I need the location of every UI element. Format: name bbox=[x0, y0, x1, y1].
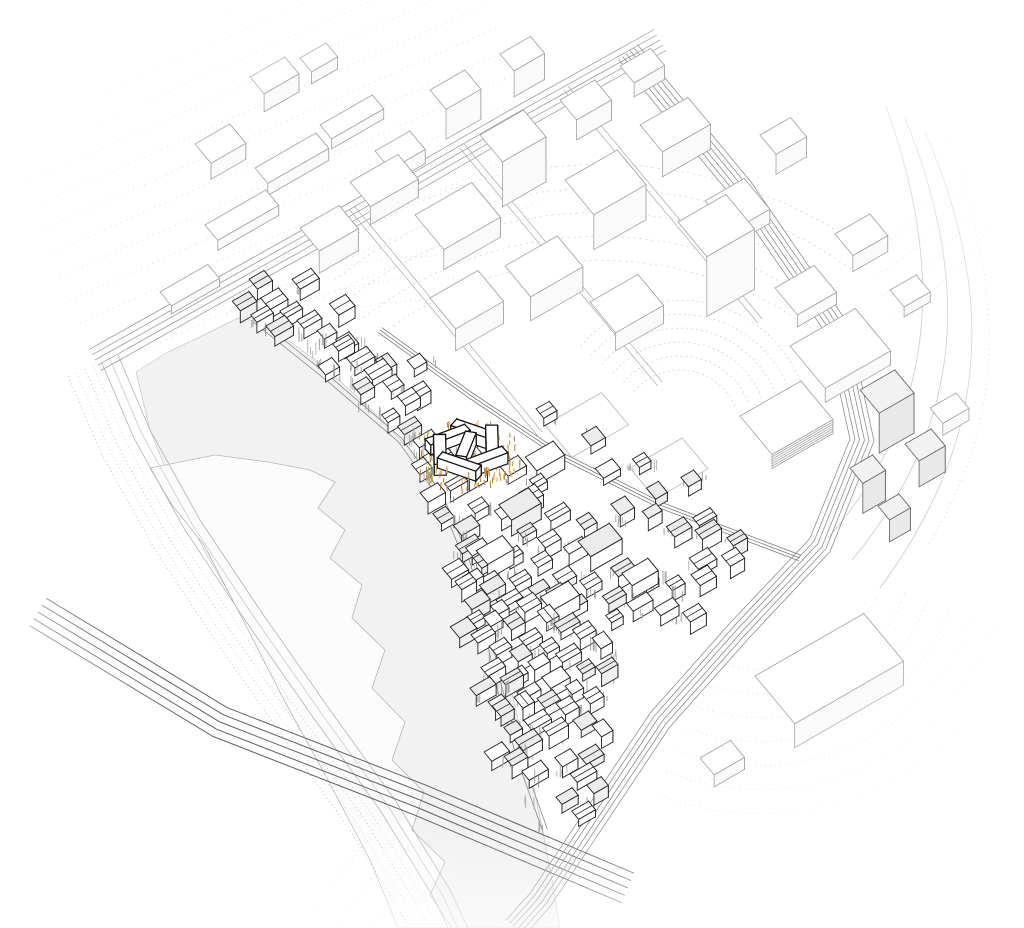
vignette-overlay bbox=[0, 0, 1024, 928]
drawing-canvas bbox=[0, 0, 1024, 928]
axonometric-site-drawing bbox=[0, 0, 1024, 928]
